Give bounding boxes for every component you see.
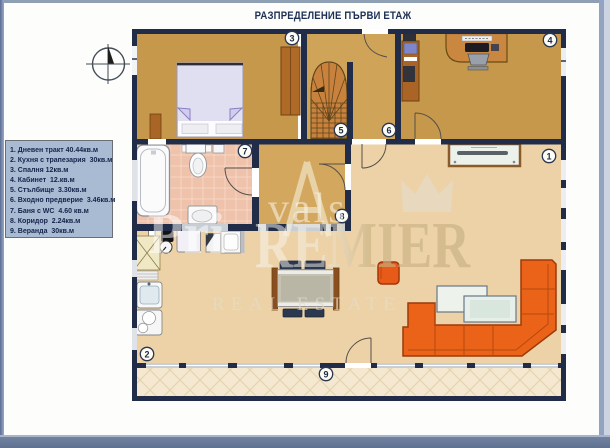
svg-text:REAL ESTATE: REAL ESTATE (212, 294, 402, 315)
svg-text:6: 6 (386, 126, 391, 136)
svg-text:Pri: Pri (148, 201, 225, 266)
svg-text:5: 5 (338, 126, 343, 136)
svg-text:9: 9 (323, 370, 328, 380)
svg-text:REMIER: REMIER (255, 209, 471, 282)
svg-text:3: 3 (289, 34, 294, 44)
svg-text:4: 4 (547, 36, 552, 46)
svg-text:2: 2 (144, 350, 149, 360)
svg-text:1: 1 (546, 152, 551, 162)
svg-text:7: 7 (242, 147, 247, 157)
